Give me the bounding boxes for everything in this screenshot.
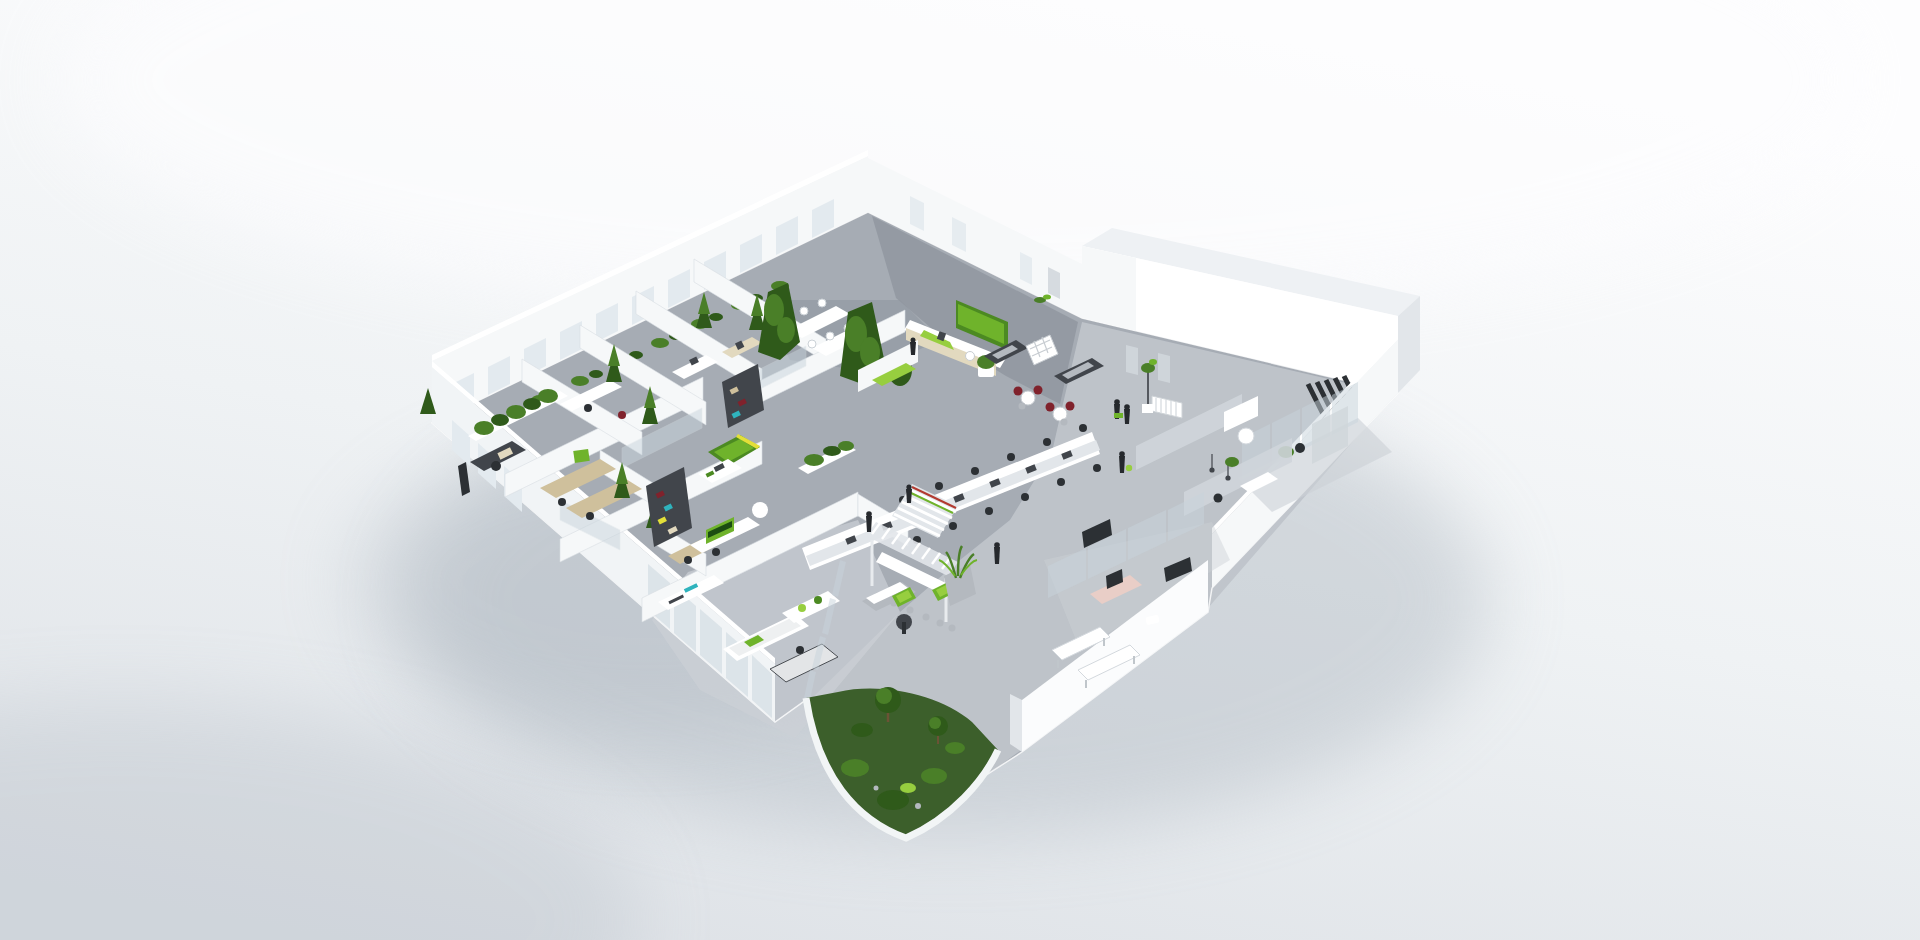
green-wall-sign [573,449,590,463]
wall-end-cap [1010,694,1022,752]
carried-plant-box [1114,413,1123,418]
red-chair [618,411,626,419]
door-opening [1126,345,1138,375]
table-post [902,622,906,634]
black-office-chair [1295,443,1305,453]
floorplan-canvas [0,0,1920,940]
person-near-bar [866,511,872,532]
white-bar-chair [966,352,975,361]
green-bag [1126,465,1132,471]
monolith-step [1082,246,1136,331]
office-floorplan-render [0,0,1920,940]
room-plant [1225,457,1239,467]
round-white-chair [1238,428,1254,444]
person-at-stair [906,484,912,503]
office-chair [491,461,501,471]
person-cafe [910,338,916,356]
pendant-lamp [796,646,804,654]
white-pouf [752,502,768,518]
person-walkway [994,542,1000,564]
door-opening-2 [1158,353,1170,383]
